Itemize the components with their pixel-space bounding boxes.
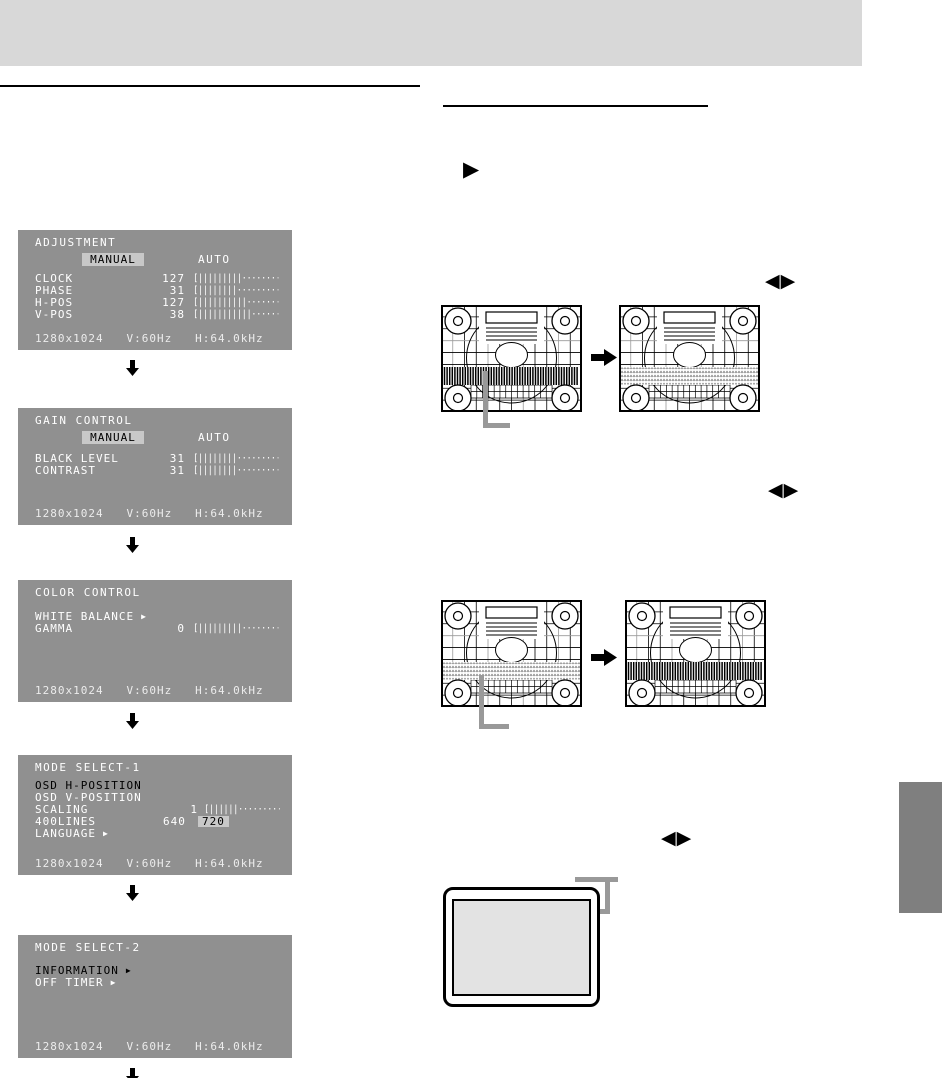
flow-down-arrow-icon [126,1068,139,1078]
test-pattern-graphic [619,305,760,412]
osd-screen-gain-control: GAIN CONTROLMANUALAUTOBLACK LEVEL31[||||… [18,408,292,525]
before-after-arrow-icon [591,649,617,666]
osd-mode-alternative: AUTO [198,431,231,444]
page-header-banner [0,0,862,66]
osd-item-value: 0 [135,623,185,634]
test-pattern-graphic [441,305,582,412]
osd-mode-selected: MANUAL [82,253,144,266]
osd-item-label: WHITE BALANCE▶ [35,611,146,622]
osd-mode-alternative: AUTO [198,253,231,266]
osd-item-label: OFF TIMER▶ [35,977,115,988]
flow-down-arrow-icon [126,537,139,553]
manual-page: ▶ ADJUSTMENTMANUALAUTOCLOCK127[|||||||||… [0,0,942,1078]
flow-down-arrow-icon [126,885,139,901]
osd-item-value: 31 [135,465,185,476]
test-pattern-graphic [441,600,582,707]
osd-title: ADJUSTMENT [35,236,116,249]
osd-slider-bar: [||||||·········] [204,804,280,815]
osd-status-line: 1280x1024 V:60Hz H:64.0kHz [35,507,264,520]
osd-item-label: 400LINES [35,816,96,827]
osd-item-label: CLOCK [35,273,73,284]
osd-item-label: V-POS [35,309,73,320]
test-pattern-after-1 [619,305,760,412]
osd-title: COLOR CONTROL [35,586,141,599]
flow-down-arrow-icon [126,713,139,729]
osd-mode-row: MANUALAUTO [18,431,292,444]
osd-item-value: 1 [148,804,198,815]
test-pattern-after-2 [625,600,766,707]
submenu-pointer-icon: ▶ [141,612,146,621]
section-edge-tab [899,782,942,913]
osd-row-contrast: CONTRAST31[||||||||··········] [18,465,292,477]
osd-item-value: 31 [135,453,185,464]
left-right-buttons-icon: ◀▶ [768,481,799,500]
right-heading-rule [443,105,708,107]
osd-screen-adjustment: ADJUSTMENTMANUALAUTOCLOCK127[|||||||||··… [18,230,292,350]
step-pointer-icon: ▶ [463,159,479,180]
osd-item-label: BLACK LEVEL [35,453,119,464]
left-right-buttons-icon: ◀▶ [661,829,692,848]
osd-status-line: 1280x1024 V:60Hz H:64.0kHz [35,684,264,697]
osd-item-value: 31 [135,285,185,296]
flow-down-arrow-icon [126,360,139,376]
osd-row-language: LANGUAGE▶ [18,828,292,840]
osd-mode-row: MANUALAUTO [18,253,292,266]
test-pattern-before-1 [441,305,582,412]
osd-status-line: 1280x1024 V:60Hz H:64.0kHz [35,332,264,345]
submenu-pointer-icon: ▶ [111,978,116,987]
osd-slider-bar: [||||||||·········] [193,285,278,296]
osd-slider-bar: [|||||||||||·······] [193,309,278,320]
osd-row-gamma: GAMMA0[|||||||||·········] [18,623,292,635]
osd-item-label: INFORMATION▶ [35,965,131,976]
osd-screen-mode-select-2: MODE SELECT-2INFORMATION▶OFF TIMER▶1280x… [18,935,292,1058]
osd-item-value: 127 [135,273,185,284]
osd-screen-mode-select-1: MODE SELECT-1OSD H-POSITIONOSD V-POSITIO… [18,755,292,875]
osd-slider-bar: [|||||||||·········] [193,623,278,634]
osd-slider-bar: [|||||||||·········] [193,273,278,284]
osd-row-off-timer: OFF TIMER▶ [18,977,292,989]
osd-item-label: PHASE [35,285,73,296]
osd-slider-bar: [||||||||··········] [193,465,278,476]
bezel-callout-bracket [575,877,618,882]
callout-line [483,371,488,428]
osd-item-label: LANGUAGE▶ [35,828,108,839]
osd-option: 640 [163,816,186,827]
osd-slider-bar: [||||||||··········] [193,453,278,464]
left-heading-rule [0,85,420,87]
osd-status-line: 1280x1024 V:60Hz H:64.0kHz [35,857,264,870]
monitor-screen [452,899,591,996]
osd-row-v-pos: V-POS38[|||||||||||·······] [18,309,292,321]
osd-slider-bar: [||||||||||·········] [193,297,278,308]
osd-mode-selected: MANUAL [82,431,144,444]
osd-item-value: 127 [135,297,185,308]
osd-title: GAIN CONTROL [35,414,132,427]
before-after-arrow-icon [591,349,617,366]
submenu-pointer-icon: ▶ [126,966,131,975]
left-right-buttons-icon: ◀▶ [765,272,796,291]
test-pattern-before-2 [441,600,582,707]
osd-title: MODE SELECT-2 [35,941,141,954]
osd-option: 720 [198,816,229,827]
osd-item-value: 38 [135,309,185,320]
osd-title: MODE SELECT-1 [35,761,141,774]
osd-status-line: 1280x1024 V:60Hz H:64.0kHz [35,1040,264,1053]
callout-line [479,724,509,729]
osd-item-label: SCALING [35,804,88,815]
callout-line [479,675,484,729]
osd-item-label: OSD V-POSITION [35,792,142,803]
osd-item-label: H-POS [35,297,73,308]
osd-screen-color-control: COLOR CONTROLWHITE BALANCE▶GAMMA0[||||||… [18,580,292,702]
callout-line [483,423,510,428]
submenu-pointer-icon: ▶ [103,829,108,838]
test-pattern-graphic [625,600,766,707]
osd-item-label: GAMMA [35,623,73,634]
osd-item-label: CONTRAST [35,465,96,476]
osd-item-label: OSD H-POSITION [35,780,142,791]
